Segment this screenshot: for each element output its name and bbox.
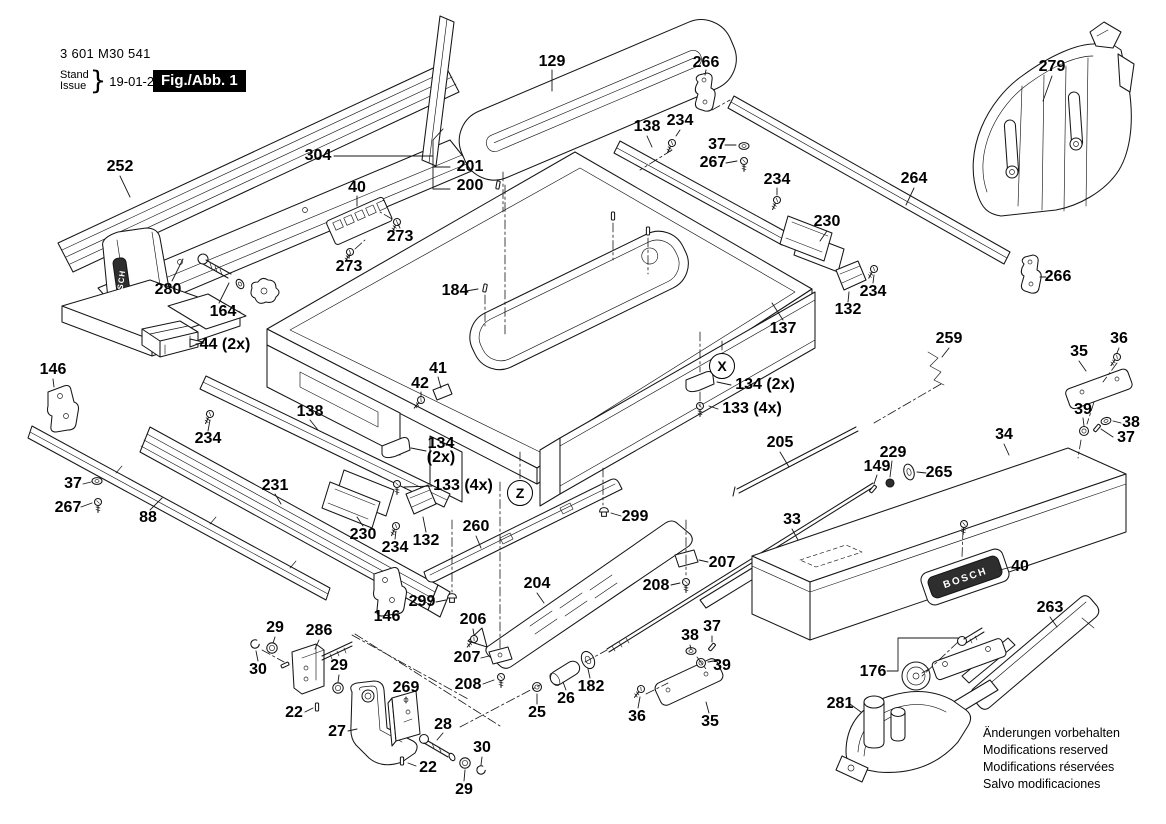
part-label-207: 207 [454,651,481,665]
part-label-35: 35 [1070,345,1088,359]
part-label-35: 35 [701,715,719,729]
pin-37-icon [1093,424,1101,432]
detail-marker-x: X [709,353,735,379]
modifications-notice: Änderungen vorbehalten Modifications res… [983,725,1120,793]
part-label-234: 234 [382,541,409,555]
part-label-30: 30 [249,663,267,677]
part-label-36: 36 [628,710,646,724]
notice-line-es: Salvo modificaciones [983,776,1120,793]
part-label-27: 27 [328,725,346,739]
brace-glyph: } [90,66,107,96]
nut-25-icon [533,683,542,692]
nut-39-icon [697,659,706,668]
part-label-442x: 44 (2x) [200,338,251,352]
detail-marker-z: Z [507,480,533,506]
part-label-265: 265 [926,466,953,480]
exploded-view-drawing: BOSCH [0,0,1166,824]
part-label-129: 129 [539,55,566,69]
part-label-208: 208 [643,579,670,593]
issue-label: Issue [60,81,89,92]
cap-299-icon [448,594,457,603]
screw-234-icon [664,138,676,154]
part-label-299: 299 [409,595,436,609]
part-label-22: 22 [419,761,437,775]
washer-265-icon [902,463,916,481]
part-label-30: 30 [473,741,491,755]
part-label-230: 230 [814,215,841,229]
part-label-263: 263 [1037,601,1064,615]
part-label-266: 266 [693,56,720,70]
part-label-42: 42 [411,377,429,391]
notice-line-en: Modifications reserved [983,742,1120,759]
part-279-blade-guard [973,22,1134,216]
part-label-132: 132 [835,303,862,317]
washer-38-icon [1100,416,1111,425]
part-label-286: 286 [306,624,333,638]
part-label-281: 281 [827,697,854,711]
part-label-184: 184 [442,284,469,298]
part-label-259: 259 [936,332,963,346]
part-label-39: 39 [713,659,731,673]
part-label-40: 40 [348,181,366,195]
part-label-280: 280 [155,283,182,297]
screw-267-icon [95,499,102,513]
part-label-37: 37 [1117,431,1135,445]
part-label-207: 207 [709,556,736,570]
washer-29-icon [267,643,277,653]
washer-37-icon [92,478,102,485]
part-label-269: 269 [393,681,420,695]
part-label-201: 201 [457,160,484,174]
part-label-252: 252 [107,160,134,174]
part-label-266: 266 [1045,270,1072,284]
part-label-279: 279 [1039,60,1066,74]
pin-200-icon [496,181,501,189]
catalog-number: 3 601 M30 541 [60,46,161,61]
screw-206-icon [465,634,479,649]
notice-line-de: Änderungen vorbehalten [983,725,1120,742]
nut-39-icon [1080,427,1089,436]
part-label-38: 38 [1122,416,1140,430]
part-label-273: 273 [336,260,363,274]
part-label-132: 132 [413,534,440,548]
part-label-267: 267 [700,156,727,170]
part-label-234: 234 [195,432,222,446]
part-label-164: 164 [210,305,237,319]
part-label-205: 205 [767,436,794,450]
figure-label-box: Fig./Abb. 1 [153,70,246,92]
part-label-234: 234 [667,114,694,128]
part-label-37: 37 [708,138,726,152]
screw-36-icon [632,684,646,699]
washer-29-icon [333,683,343,693]
screw-267-icon [741,158,748,172]
part-label-234: 234 [860,285,887,299]
diagram-canvas: BOSCH [0,0,1166,824]
washer-37-icon [739,143,749,150]
part-label-234: 234 [764,173,791,187]
part-label-25: 25 [528,706,546,720]
cap-299-icon [600,508,609,517]
part-label-260: 260 [463,520,490,534]
part-label-182: 182 [578,680,605,694]
pin-37-icon [708,643,716,651]
part-label-230: 230 [350,528,377,542]
part-269-bracket [388,691,420,746]
part-label-149: 149 [864,460,891,474]
part-label-208: 208 [455,678,482,692]
part-label-88: 88 [139,511,157,525]
part-label-41: 41 [429,362,447,376]
part-label-1342x: 134 (2x) [735,378,795,392]
part-label-231: 231 [262,479,289,493]
part-label-37: 37 [703,620,721,634]
screw-133-icon [394,481,401,495]
washer-29-icon [460,758,470,768]
part-label-29: 29 [330,659,348,673]
part-label-146: 146 [40,363,67,377]
part-label-39: 39 [1074,403,1092,417]
part-label-28: 28 [434,718,452,732]
part-label-304: 304 [305,149,332,163]
issue-row: Stand Issue } 19-01-24 [60,66,161,96]
screw-234-icon [388,521,400,537]
part-label-264: 264 [901,172,928,186]
screw-234-icon [769,195,781,211]
ring-30-icon [249,639,260,650]
part-label-36: 36 [1110,332,1128,346]
part-label-22: 22 [285,706,303,720]
part-label-37: 37 [64,477,82,491]
screw-208-icon [498,674,505,688]
part-label-200: 200 [457,179,484,193]
disc-icon [902,662,930,690]
part-label-146: 146 [374,610,401,624]
part-label-299: 299 [622,510,649,524]
part-label-206: 206 [460,613,487,627]
part-34-rip-fence: BOSCH [752,352,1133,640]
part-label-138: 138 [297,405,324,419]
part-label-134: 134(2x) [427,437,455,465]
part-label-204: 204 [524,577,551,591]
part-label-34: 34 [995,428,1013,442]
screw-208-icon [683,579,690,593]
part-label-176: 176 [860,665,887,679]
ring-30-icon [475,765,486,776]
screw-234-icon [866,264,879,280]
part-label-1334x: 133 (4x) [722,402,782,416]
part-label-138: 138 [634,120,661,134]
part-281-miter-gauge [836,680,998,782]
pin-149-icon [869,485,877,493]
part-label-273: 273 [387,230,414,244]
notice-line-fr: Modifications réservées [983,759,1120,776]
pin-22-icon [315,703,318,711]
part-label-33: 33 [783,513,801,527]
part-label-38: 38 [681,629,699,643]
part-266-hook-top [695,73,715,111]
part-label-26: 26 [557,692,575,706]
part-label-267: 267 [55,501,82,515]
part-146-hinge-top-left [48,386,79,433]
pin-22-icon [400,757,403,765]
title-block: 3 601 M30 541 Stand Issue } 19-01-24 [60,46,161,96]
part-label-1334x: 133 (4x) [433,479,493,493]
screw-234-icon [202,409,214,425]
ball-229-icon [886,479,894,487]
part-label-137: 137 [770,322,797,336]
part-label-29: 29 [266,621,284,635]
part-label-40: 40 [1011,560,1029,574]
part-label-29: 29 [455,783,473,797]
